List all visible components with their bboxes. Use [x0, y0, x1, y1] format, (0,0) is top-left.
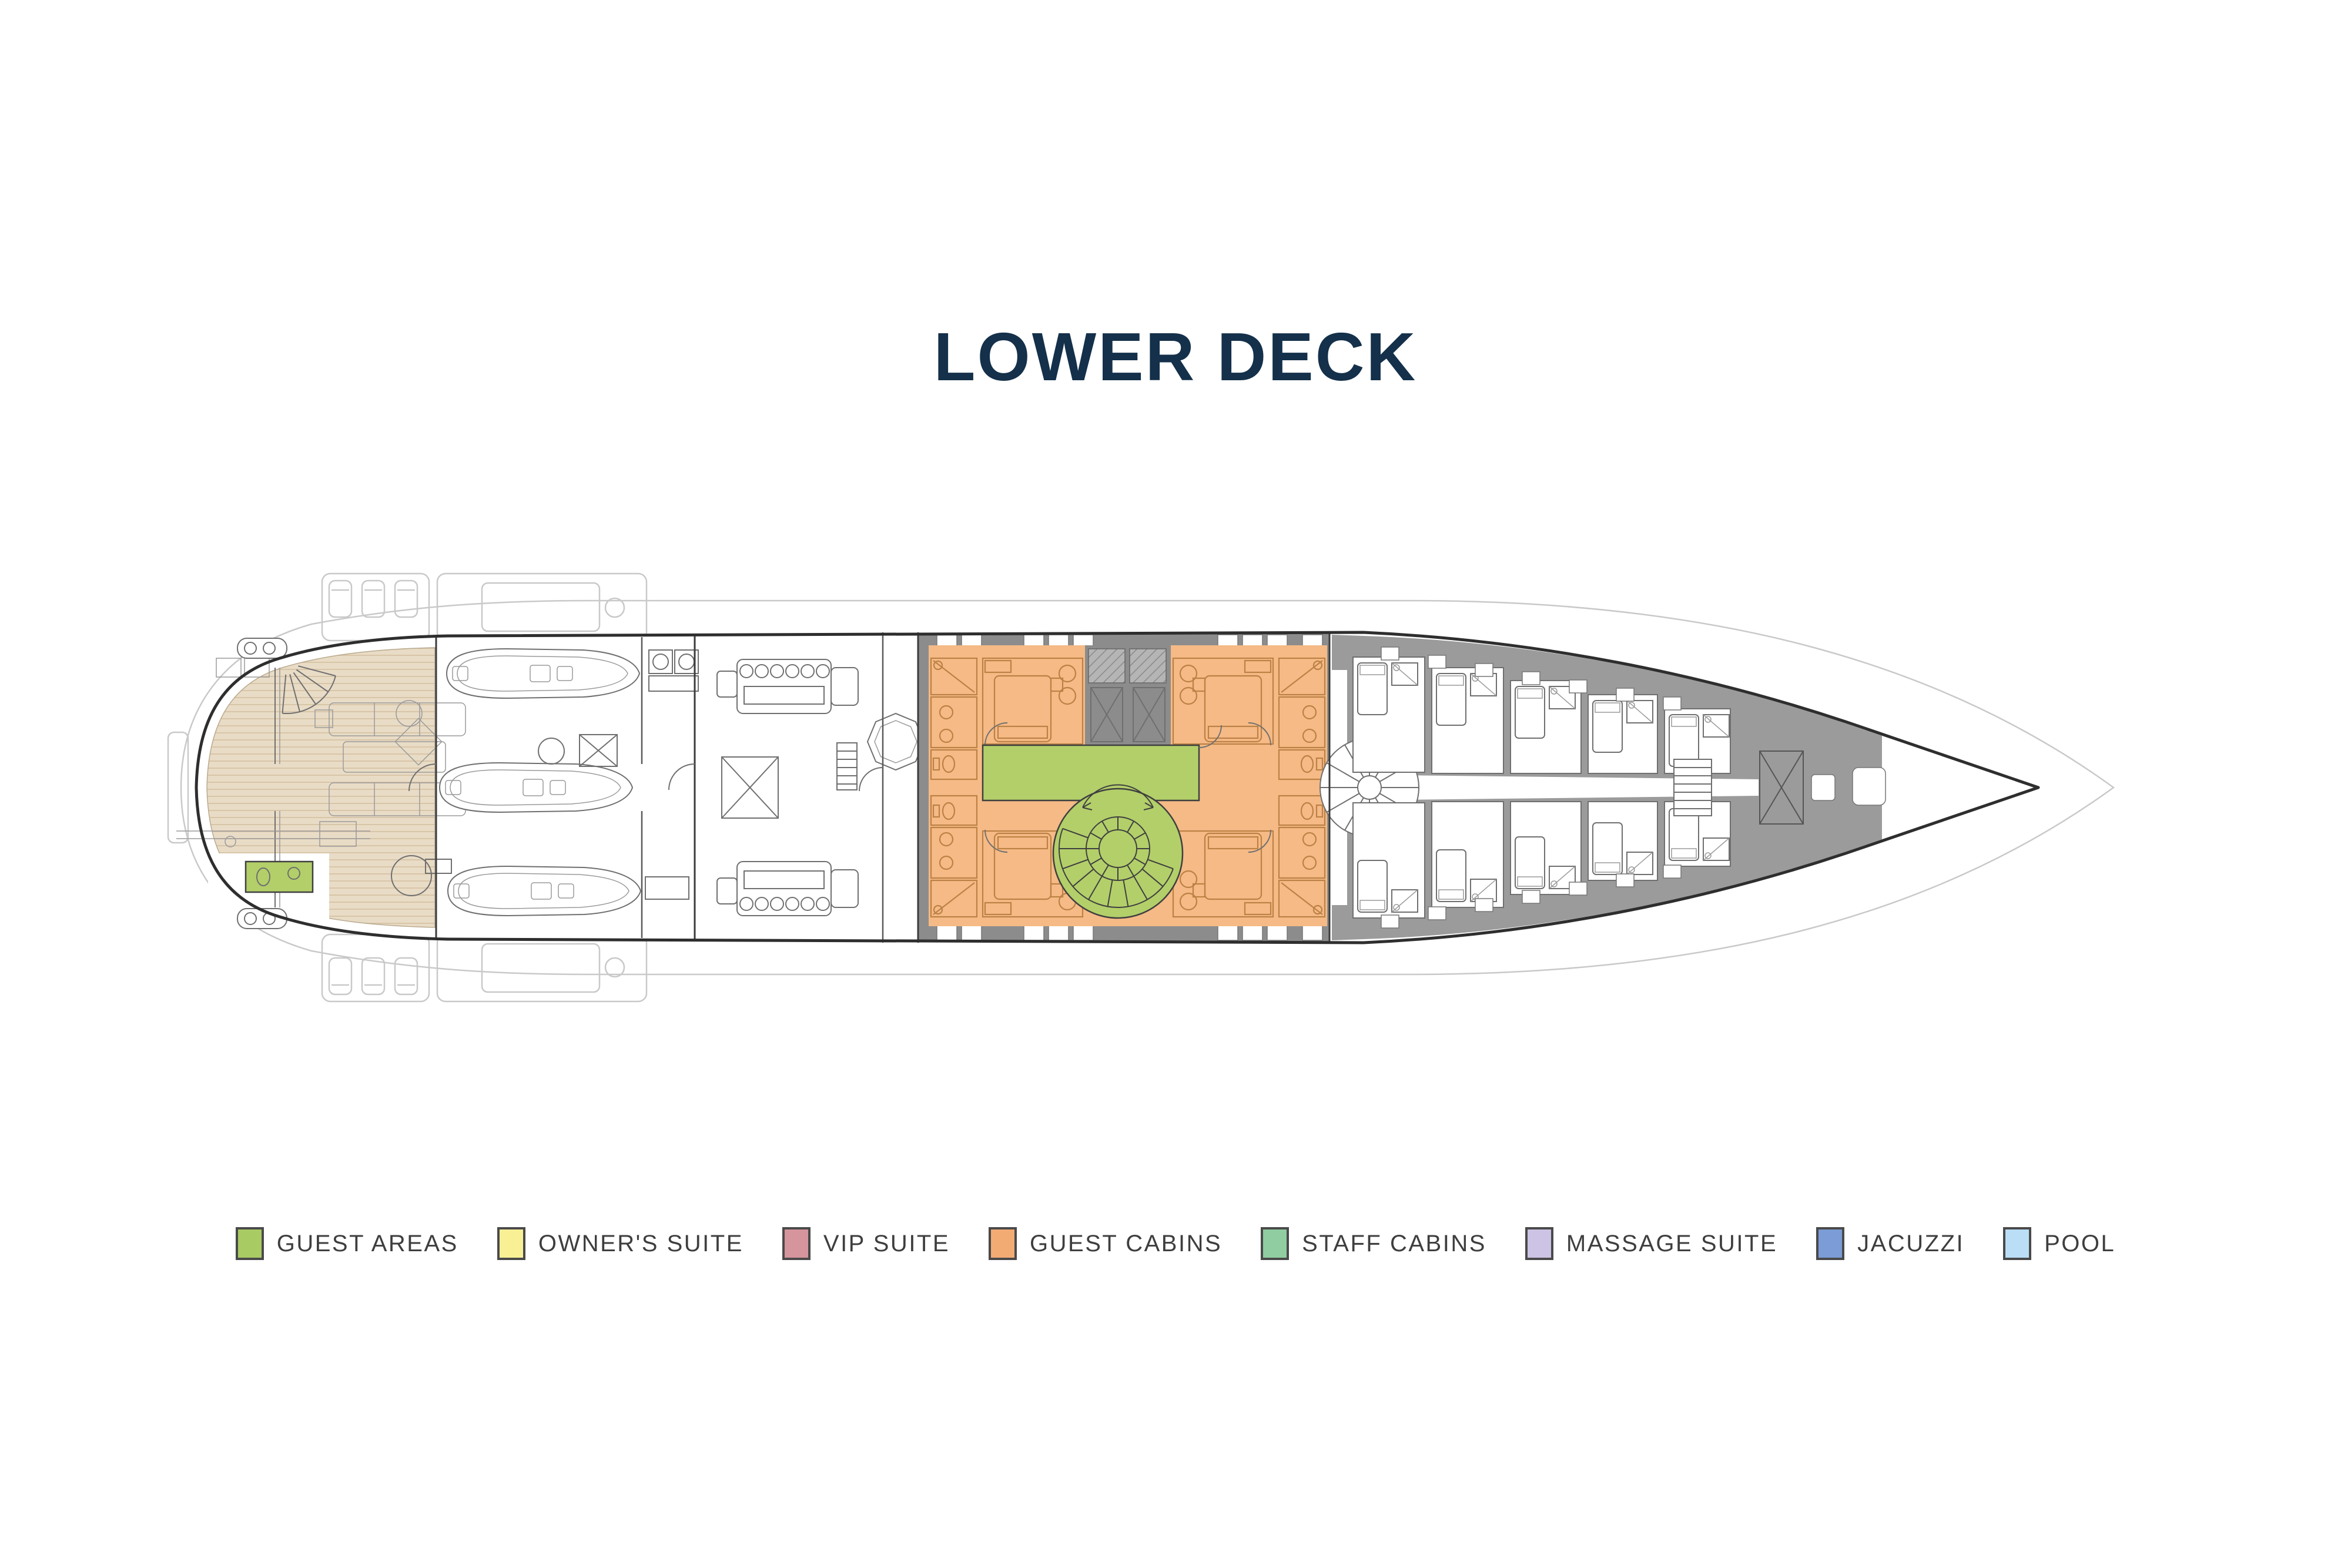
legend-item-jacuzzi: JACUZZI — [1816, 1227, 1964, 1260]
crew-quarters — [1320, 635, 1886, 940]
guest-areas-swatch — [236, 1227, 264, 1260]
beach-club-lounge — [176, 638, 465, 929]
legend-item-guest-areas: GUEST AREAS — [236, 1227, 458, 1260]
elevator-lobby-core — [1085, 645, 1171, 745]
massage-suite-swatch — [1525, 1227, 1553, 1260]
legend-label-jacuzzi: JACUZZI — [1857, 1231, 1964, 1257]
vip-suite-swatch — [782, 1227, 811, 1260]
guest-cabin-block — [918, 634, 1329, 942]
wardrobe — [1089, 649, 1125, 683]
guest-cabins-swatch — [989, 1227, 1017, 1260]
wardrobe — [1130, 649, 1166, 683]
owners-suite-swatch — [497, 1227, 525, 1260]
legend-label-staff-cabins: STAFF CABINS — [1302, 1231, 1486, 1257]
legend-item-owners-suite: OWNER'S SUITE — [497, 1227, 744, 1260]
legend: GUEST AREASOWNER'S SUITEVIP SUITEGUEST C… — [0, 1227, 2351, 1260]
guest-lobby — [983, 745, 1199, 800]
legend-item-pool: POOL — [2003, 1227, 2115, 1260]
staff-cabins-swatch — [1261, 1227, 1289, 1260]
escape-hatch-octagon — [868, 713, 924, 770]
ghost-sundeck-row — [322, 574, 647, 641]
legend-item-guest-cabins: GUEST CABINS — [989, 1227, 1222, 1260]
legend-label-guest-areas: GUEST AREAS — [277, 1231, 458, 1257]
legend-item-staff-cabins: STAFF CABINS — [1261, 1227, 1486, 1260]
deck-plan — [0, 0, 2351, 1568]
aft-day-head — [246, 862, 313, 892]
legend-item-massage-suite: MASSAGE SUITE — [1525, 1227, 1777, 1260]
legend-label-vip-suite: VIP SUITE — [823, 1231, 950, 1257]
legend-item-vip-suite: VIP SUITE — [782, 1227, 950, 1260]
crew-staircase — [1674, 759, 1712, 816]
legend-label-owners-suite: OWNER'S SUITE — [538, 1231, 744, 1257]
legend-label-massage-suite: MASSAGE SUITE — [1566, 1231, 1777, 1257]
guest-stair-room — [1053, 789, 1183, 918]
jacuzzi-swatch — [1816, 1227, 1844, 1260]
legend-label-guest-cabins: GUEST CABINS — [1030, 1231, 1222, 1257]
legend-label-pool: POOL — [2044, 1231, 2115, 1257]
page: LOWER DECK — [0, 0, 2351, 1568]
pool-swatch — [2003, 1227, 2031, 1260]
